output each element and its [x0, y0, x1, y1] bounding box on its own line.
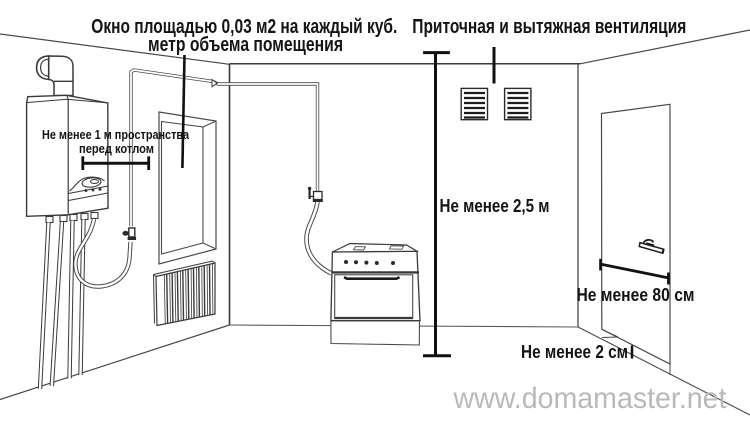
- svg-text:Не менее 80 см: Не менее 80 см: [577, 285, 695, 305]
- svg-text:www.domamaster.net: www.domamaster.net: [453, 382, 728, 415]
- svg-text:Не менее 2,5 м: Не менее 2,5 м: [440, 196, 550, 216]
- svg-text:Не менее 2 см: Не менее 2 см: [521, 342, 628, 362]
- svg-text:Приточная и вытяжная вентиляци: Приточная и вытяжная вентиляция: [412, 16, 686, 38]
- svg-text:Не менее 1 м пространства: Не менее 1 м пространства: [42, 127, 190, 142]
- svg-text:перед котлом: перед котлом: [79, 141, 154, 156]
- svg-text:метр объема помещения: метр объема помещения: [148, 34, 343, 56]
